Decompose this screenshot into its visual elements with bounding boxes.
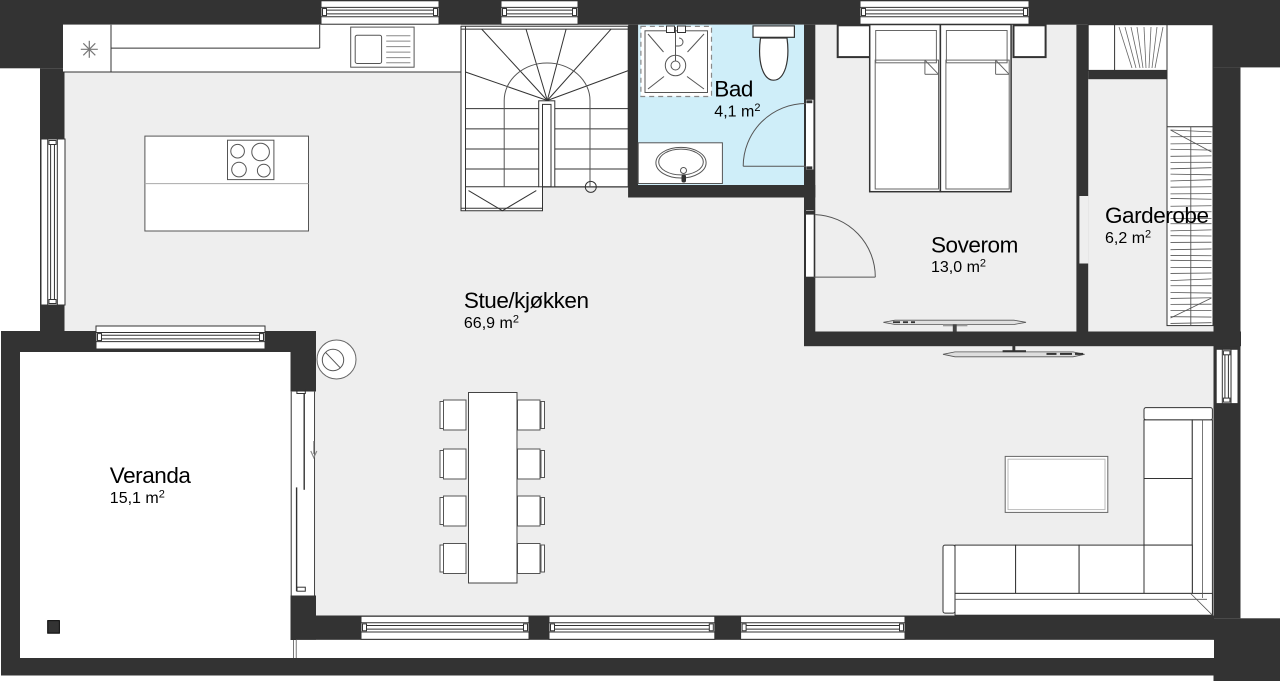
svg-text:Veranda: Veranda bbox=[110, 463, 192, 488]
svg-text:66,9 m2: 66,9 m2 bbox=[464, 314, 519, 332]
svg-text:6,2 m2: 6,2 m2 bbox=[1105, 229, 1151, 247]
svg-text:Bad: Bad bbox=[714, 77, 753, 102]
svg-text:Soverom: Soverom bbox=[931, 233, 1018, 258]
svg-text:15,1 m2: 15,1 m2 bbox=[110, 489, 165, 507]
svg-text:Stue/kjøkken: Stue/kjøkken bbox=[464, 288, 589, 313]
svg-text:Garderobe: Garderobe bbox=[1105, 203, 1209, 228]
svg-text:13,0 m2: 13,0 m2 bbox=[931, 258, 986, 276]
svg-text:4,1 m2: 4,1 m2 bbox=[714, 102, 760, 120]
